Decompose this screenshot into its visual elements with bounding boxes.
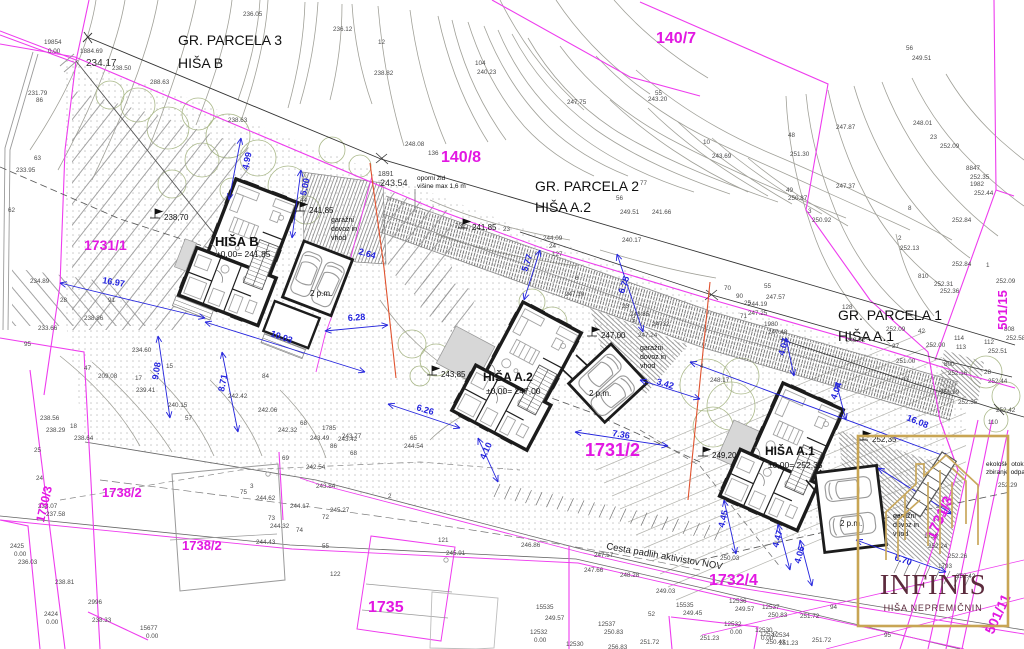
svg-text:238.86: 238.86 <box>84 315 104 322</box>
svg-text:140/8: 140/8 <box>441 149 481 166</box>
svg-text:2996: 2996 <box>88 599 103 606</box>
svg-text:oporni zid: oporni zid <box>417 175 446 182</box>
svg-text:231.79: 231.79 <box>28 90 48 97</box>
svg-text:HIŠA B: HIŠA B <box>215 234 259 249</box>
svg-text:63: 63 <box>34 155 42 162</box>
svg-text:249,20: 249,20 <box>712 451 737 460</box>
svg-text:252.35: 252.35 <box>970 174 990 181</box>
svg-text:252.09: 252.09 <box>996 278 1016 285</box>
svg-text:23: 23 <box>930 134 938 141</box>
svg-text:1738/2: 1738/2 <box>102 485 142 500</box>
svg-text:244.09: 244.09 <box>543 235 563 242</box>
svg-text:238.63: 238.63 <box>228 117 248 124</box>
svg-text:12537: 12537 <box>762 604 780 611</box>
svg-text:243.69: 243.69 <box>712 153 732 160</box>
svg-text:233.95: 233.95 <box>16 167 36 174</box>
svg-text:249.51: 249.51 <box>620 209 640 216</box>
svg-text:114: 114 <box>954 335 965 342</box>
svg-text:3: 3 <box>808 208 812 215</box>
svg-text:241,85: 241,85 <box>472 223 497 232</box>
svg-text:84: 84 <box>262 373 270 380</box>
svg-text:48: 48 <box>788 132 796 139</box>
svg-text:0.00: 0.00 <box>14 551 27 558</box>
svg-text:251.72: 251.72 <box>640 639 660 646</box>
svg-text:12530: 12530 <box>566 641 584 648</box>
svg-text:55: 55 <box>322 543 330 550</box>
svg-text:243,85: 243,85 <box>441 370 466 379</box>
svg-text:501/15: 501/15 <box>995 290 1010 330</box>
svg-text:244.32: 244.32 <box>270 523 290 530</box>
svg-text:1982: 1982 <box>970 181 985 188</box>
svg-text:8: 8 <box>908 205 912 212</box>
svg-text:245.91: 245.91 <box>446 550 466 557</box>
svg-text:247.48: 247.48 <box>768 329 788 336</box>
svg-text:236.12: 236.12 <box>333 26 353 33</box>
svg-text:10: 10 <box>703 139 711 146</box>
svg-text:2: 2 <box>898 235 902 242</box>
svg-text:15677: 15677 <box>140 625 158 632</box>
svg-text:±0,00= 247,00: ±0,00= 247,00 <box>486 386 541 396</box>
svg-text:252.00: 252.00 <box>926 342 946 349</box>
svg-text:140/7: 140/7 <box>656 30 696 47</box>
svg-text:240.15: 240.15 <box>168 402 188 409</box>
svg-text:122: 122 <box>330 571 341 578</box>
svg-text:252.84: 252.84 <box>952 261 972 268</box>
svg-text:243.84: 243.84 <box>316 483 336 490</box>
svg-text:247.24: 247.24 <box>638 332 658 339</box>
svg-text:1785: 1785 <box>322 425 337 432</box>
svg-text:15535: 15535 <box>676 602 694 609</box>
svg-text:252.31: 252.31 <box>934 281 954 288</box>
svg-text:56: 56 <box>616 195 624 202</box>
svg-text:zbiranje odpadkov: zbiranje odpadkov <box>986 469 1024 476</box>
svg-text:višine max 1,6 m: višine max 1,6 m <box>417 183 466 190</box>
svg-text:12: 12 <box>378 39 386 46</box>
svg-text:garažni: garažni <box>331 217 354 224</box>
svg-text:28: 28 <box>60 297 68 304</box>
svg-text:75: 75 <box>240 489 248 496</box>
svg-text:110: 110 <box>988 419 999 426</box>
svg-text:dovoz in: dovoz in <box>640 354 666 361</box>
svg-text:vhod: vhod <box>640 363 655 370</box>
svg-text:0.00: 0.00 <box>730 629 743 636</box>
svg-text:55: 55 <box>764 283 772 290</box>
svg-text:112: 112 <box>984 339 995 346</box>
svg-text:GR. PARCELA 2: GR. PARCELA 2 <box>535 178 639 194</box>
svg-text:251.23: 251.23 <box>779 640 799 647</box>
svg-text:238,70: 238,70 <box>164 213 189 222</box>
svg-text:242.06: 242.06 <box>258 407 278 414</box>
svg-text:1980: 1980 <box>764 321 779 328</box>
svg-text:136: 136 <box>428 150 439 157</box>
svg-text:4: 4 <box>700 363 704 370</box>
svg-text:86: 86 <box>36 97 44 104</box>
svg-text:128: 128 <box>842 304 853 311</box>
svg-text:12534: 12534 <box>772 632 790 639</box>
svg-text:247.66: 247.66 <box>584 567 604 574</box>
svg-text:15: 15 <box>166 363 174 370</box>
svg-text:dovoz in: dovoz in <box>331 226 357 233</box>
svg-text:249.45: 249.45 <box>683 610 703 617</box>
svg-text:23: 23 <box>503 226 511 233</box>
svg-text:238.82: 238.82 <box>374 70 394 77</box>
svg-text:28: 28 <box>984 369 992 376</box>
svg-text:6.28: 6.28 <box>347 312 365 323</box>
svg-text:5: 5 <box>632 317 636 324</box>
svg-text:104: 104 <box>475 60 486 67</box>
svg-text:252.51: 252.51 <box>988 348 1008 355</box>
svg-text:243.54: 243.54 <box>380 178 408 188</box>
svg-text:1731/1: 1731/1 <box>84 237 127 253</box>
svg-text:249.57: 249.57 <box>545 615 565 622</box>
svg-text:0.00: 0.00 <box>46 619 59 626</box>
svg-text:250.83: 250.83 <box>604 629 624 636</box>
svg-text:1738/2: 1738/2 <box>182 538 222 553</box>
svg-text:241,85: 241,85 <box>309 206 334 215</box>
svg-text:1884.69: 1884.69 <box>80 48 103 55</box>
svg-text:12537: 12537 <box>598 621 616 628</box>
svg-text:248.08: 248.08 <box>405 141 425 148</box>
svg-text:12530: 12530 <box>755 627 773 634</box>
svg-text:24: 24 <box>549 243 557 250</box>
svg-text:77: 77 <box>640 180 648 187</box>
svg-text:252.35: 252.35 <box>958 399 978 406</box>
svg-text:209.08: 209.08 <box>98 373 118 380</box>
svg-text:247,00: 247,00 <box>601 331 626 340</box>
svg-text:24: 24 <box>36 475 44 482</box>
svg-text:24732: 24732 <box>652 321 670 328</box>
svg-text:248.01: 248.01 <box>913 120 933 127</box>
svg-text:251.72: 251.72 <box>800 613 820 620</box>
svg-text:243.20: 243.20 <box>648 96 668 103</box>
svg-text:247.87: 247.87 <box>836 124 856 131</box>
svg-text:52: 52 <box>648 611 656 618</box>
svg-text:68: 68 <box>300 420 308 427</box>
svg-text:249.57: 249.57 <box>735 606 755 613</box>
svg-text:252.42: 252.42 <box>996 407 1016 414</box>
svg-text:252.09: 252.09 <box>886 326 906 333</box>
svg-text:247.10: 247.10 <box>565 291 585 298</box>
svg-text:243.77: 243.77 <box>342 433 362 440</box>
svg-text:250.92: 250.92 <box>812 217 832 224</box>
svg-text:250.83: 250.83 <box>768 612 788 619</box>
svg-text:HIŠA NEPREMIČNIN: HIŠA NEPREMIČNIN <box>884 603 983 613</box>
svg-text:236.03: 236.03 <box>18 559 38 566</box>
svg-text:252.44: 252.44 <box>974 190 994 197</box>
svg-text:238.64: 238.64 <box>74 435 94 442</box>
svg-text:800: 800 <box>944 361 955 368</box>
svg-text:73: 73 <box>455 223 463 230</box>
svg-text:248.28: 248.28 <box>620 572 640 579</box>
svg-text:94: 94 <box>830 604 838 611</box>
svg-text:242.32: 242.32 <box>278 427 298 434</box>
svg-text:2425: 2425 <box>10 543 25 550</box>
svg-text:HIŠA B: HIŠA B <box>178 55 223 71</box>
svg-text:±0,00= 241,85: ±0,00= 241,85 <box>216 249 271 259</box>
svg-text:236.05: 236.05 <box>243 11 263 18</box>
svg-text:GR. PARCELA 3: GR. PARCELA 3 <box>178 32 282 48</box>
svg-text:252.16: 252.16 <box>948 370 968 377</box>
svg-text:244.43: 244.43 <box>256 539 276 546</box>
svg-text:242.42: 242.42 <box>228 393 248 400</box>
svg-text:252.36: 252.36 <box>940 288 960 295</box>
svg-text:2424: 2424 <box>44 611 59 618</box>
svg-text:49: 49 <box>786 187 794 194</box>
svg-text:42: 42 <box>918 328 926 335</box>
svg-text:57: 57 <box>185 415 193 422</box>
svg-text:238.29: 238.29 <box>46 427 66 434</box>
svg-text:240.17: 240.17 <box>622 237 642 244</box>
svg-text:71: 71 <box>740 313 748 320</box>
svg-text:244.54: 244.54 <box>404 443 424 450</box>
svg-text:256.83: 256.83 <box>608 644 628 649</box>
svg-text:43: 43 <box>902 376 910 383</box>
svg-text:247.57: 247.57 <box>594 552 614 559</box>
svg-text:27: 27 <box>892 343 900 350</box>
svg-text:121: 121 <box>438 537 449 544</box>
svg-text:233.66: 233.66 <box>38 325 58 332</box>
svg-text:251.30: 251.30 <box>790 151 810 158</box>
svg-text:0.00: 0.00 <box>48 48 61 55</box>
svg-text:1891: 1891 <box>378 171 394 178</box>
svg-text:47: 47 <box>84 365 92 372</box>
svg-text:247.37: 247.37 <box>836 183 856 190</box>
svg-text:ekološki otok -: ekološki otok - <box>986 461 1024 468</box>
svg-text:1735: 1735 <box>368 599 404 616</box>
svg-text:238.81: 238.81 <box>55 579 75 586</box>
svg-text:86: 86 <box>330 443 338 450</box>
svg-text:70: 70 <box>724 285 732 292</box>
svg-text:238.33: 238.33 <box>92 617 112 624</box>
svg-text:HIŠA A.1: HIŠA A.1 <box>765 443 815 458</box>
svg-text:252.26: 252.26 <box>948 553 968 560</box>
svg-text:72: 72 <box>322 514 330 521</box>
svg-text:241.66: 241.66 <box>652 209 672 216</box>
svg-text:74: 74 <box>296 527 304 534</box>
svg-text:242.54: 242.54 <box>306 464 326 471</box>
svg-text:249.51: 249.51 <box>912 55 932 62</box>
svg-text:68: 68 <box>350 450 358 457</box>
svg-text:252.58: 252.58 <box>1006 335 1024 342</box>
svg-text:251.72: 251.72 <box>812 637 832 644</box>
svg-text:243.85: 243.85 <box>630 311 650 318</box>
svg-text:HIŠA A.2: HIŠA A.2 <box>535 199 591 215</box>
svg-text:dovoz in: dovoz in <box>893 522 919 529</box>
svg-text:vhod: vhod <box>331 235 346 242</box>
svg-text:12532: 12532 <box>724 621 742 628</box>
svg-text:62: 62 <box>8 207 16 214</box>
svg-text:248.17: 248.17 <box>710 377 730 384</box>
svg-text:113: 113 <box>956 344 967 351</box>
svg-text:1732/4: 1732/4 <box>709 572 758 589</box>
svg-text:252.13: 252.13 <box>900 245 920 252</box>
svg-text:±0,00= 252,35: ±0,00= 252,35 <box>768 460 823 470</box>
svg-text:56: 56 <box>906 45 914 52</box>
svg-text:23: 23 <box>622 303 630 310</box>
svg-text:238.50: 238.50 <box>112 65 132 72</box>
svg-text:3: 3 <box>250 483 254 490</box>
svg-text:251.99: 251.99 <box>940 389 960 396</box>
svg-text:15535: 15535 <box>536 604 554 611</box>
svg-text:244.17: 244.17 <box>290 503 310 510</box>
svg-text:INFINIS: INFINIS <box>880 569 987 601</box>
svg-text:251.23: 251.23 <box>700 635 720 642</box>
svg-text:GR. PARCELA 1: GR. PARCELA 1 <box>838 307 942 323</box>
svg-text:248.92: 248.92 <box>846 337 866 344</box>
svg-text:HIŠA A.2: HIŠA A.2 <box>483 369 533 384</box>
svg-text:19854: 19854 <box>44 39 62 46</box>
svg-text:95: 95 <box>884 632 892 639</box>
svg-text:25: 25 <box>744 300 752 307</box>
svg-text:91: 91 <box>108 297 116 304</box>
svg-text:252.09: 252.09 <box>940 143 960 150</box>
svg-text:55: 55 <box>655 90 663 97</box>
svg-text:2 p.m.: 2 p.m. <box>310 289 332 298</box>
svg-text:246.86: 246.86 <box>521 542 541 549</box>
svg-text:90: 90 <box>736 293 744 300</box>
svg-text:73: 73 <box>268 515 276 522</box>
svg-text:95: 95 <box>24 341 32 348</box>
svg-text:247.57: 247.57 <box>766 294 786 301</box>
svg-text:239.41: 239.41 <box>136 387 156 394</box>
svg-text:249.03: 249.03 <box>656 588 676 595</box>
svg-text:288.63: 288.63 <box>150 79 170 86</box>
svg-text:1731/2: 1731/2 <box>585 440 640 460</box>
svg-text:243.49: 243.49 <box>310 435 330 442</box>
svg-text:252.84: 252.84 <box>952 217 972 224</box>
svg-text:12532: 12532 <box>530 629 548 636</box>
svg-text:18: 18 <box>70 423 78 430</box>
svg-text:244.62: 244.62 <box>256 495 276 502</box>
svg-text:8847: 8847 <box>966 165 981 172</box>
svg-text:2 p.m.: 2 p.m. <box>589 389 611 398</box>
svg-text:252.44: 252.44 <box>988 378 1008 385</box>
svg-text:250.03: 250.03 <box>720 555 740 562</box>
svg-text:810: 810 <box>918 273 929 280</box>
svg-text:44: 44 <box>300 197 308 204</box>
svg-text:1: 1 <box>986 262 990 269</box>
svg-text:250.87: 250.87 <box>788 195 808 202</box>
svg-text:2: 2 <box>388 493 392 500</box>
svg-text:0.00: 0.00 <box>534 637 547 644</box>
svg-text:25: 25 <box>34 447 42 454</box>
svg-text:251.00: 251.00 <box>896 358 916 365</box>
svg-text:69: 69 <box>282 455 290 462</box>
svg-text:252.24: 252.24 <box>928 543 948 550</box>
svg-text:65: 65 <box>410 435 418 442</box>
svg-text:240.23: 240.23 <box>477 69 497 76</box>
svg-text:vhod: vhod <box>893 531 908 538</box>
svg-text:garažni: garažni <box>640 345 663 352</box>
svg-text:238.56: 238.56 <box>40 415 60 422</box>
svg-text:234.89: 234.89 <box>30 278 50 285</box>
svg-text:234.60: 234.60 <box>132 347 152 354</box>
svg-text:17: 17 <box>135 375 143 382</box>
svg-text:247.75: 247.75 <box>567 99 587 106</box>
svg-text:247.25: 247.25 <box>748 310 768 317</box>
svg-text:12536: 12536 <box>729 598 747 605</box>
svg-text:6: 6 <box>575 275 579 282</box>
svg-text:127: 127 <box>552 251 563 258</box>
svg-text:0.00: 0.00 <box>146 633 159 640</box>
svg-text:245.27: 245.27 <box>330 507 350 514</box>
